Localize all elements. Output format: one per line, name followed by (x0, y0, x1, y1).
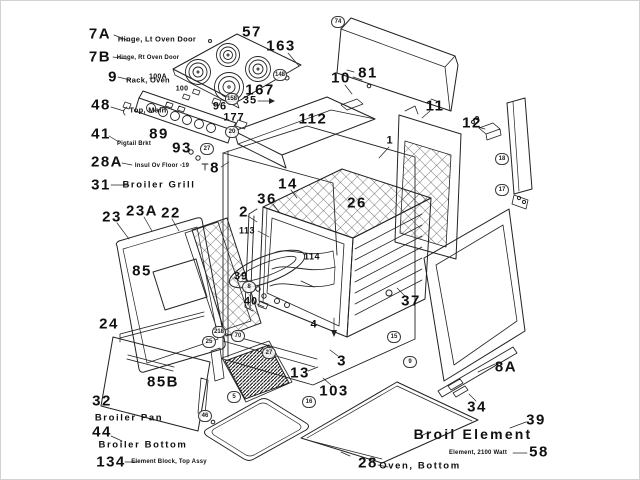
circled-callout-27: 27 (200, 143, 214, 155)
part-number-57: 57 (242, 25, 262, 40)
part-number-34: 34 (467, 400, 487, 415)
part-number-85: 85 (132, 264, 152, 279)
part-number-7B: 7B (89, 50, 111, 65)
part-number-24: 24 (99, 317, 119, 332)
part-label-44: Broiler Bottom (99, 440, 188, 450)
circled-callout-16: 16 (302, 396, 316, 408)
part-number-177: 177 (223, 113, 244, 124)
circled-callout-46: 46 (198, 410, 212, 422)
part-number-85B: 85B (147, 375, 179, 390)
part-number-23A: 23A (126, 204, 158, 219)
part-number-35: 35 (243, 96, 257, 107)
part-number-14: 14 (278, 177, 298, 192)
part-label-41: Pigtail Brkt (117, 141, 151, 147)
parts-diagram-canvas: 7AHinge, Lt Oven Door7BHinge, Rt Oven Do… (0, 0, 640, 480)
part-number-23: 23 (102, 210, 122, 225)
circled-callout-158: 158 (225, 93, 239, 105)
circled-callout-18: 18 (495, 153, 509, 165)
part-label-31: Broiler Grill (122, 180, 195, 190)
part-number-9: 9 (108, 70, 118, 85)
part-number-93: 93 (172, 141, 192, 156)
part-label-28A: Insul Ov Floor -19 (135, 163, 189, 169)
part-number-3: 3 (337, 354, 347, 369)
part-number-7A: 7A (89, 27, 111, 42)
part-number-32: 32 (92, 394, 112, 409)
circled-callout-25: 25 (202, 336, 216, 348)
part-number-44: 44 (92, 425, 112, 440)
part-number-28: 28 (358, 456, 378, 471)
part-number-12: 12 (462, 116, 482, 131)
part-number-26: 26 (347, 196, 367, 211)
part-number-31: 31 (91, 178, 111, 193)
part-number-8A: 8A (495, 360, 517, 375)
circled-callout-70: 70 (231, 330, 245, 342)
circled-callout-9: 9 (403, 356, 417, 368)
callout-layer: 7AHinge, Lt Oven Door7BHinge, Rt Oven Do… (1, 1, 640, 480)
part-number-112: 112 (299, 112, 328, 127)
part-number-81: 81 (358, 66, 378, 81)
circled-callout-148: 148 (273, 69, 287, 81)
part-number-58: 58 (529, 445, 549, 460)
circled-callout-15: 15 (387, 331, 401, 343)
part-label-32: Broiler Pan (95, 413, 163, 423)
part-number-41: 41 (91, 127, 111, 142)
part-number-100A: 100A (149, 74, 167, 81)
part-number-13: 13 (290, 366, 310, 381)
part-number-163: 163 (266, 39, 296, 54)
part-label-58: Element, 2100 Watt (449, 450, 507, 456)
part-label-7B: Hinge, Rt Oven Door (117, 55, 179, 61)
part-number-22: 22 (161, 206, 181, 221)
part-number-10: 10 (331, 71, 351, 86)
part-number-40: 40 (244, 297, 258, 308)
part-number-28A: 28A (91, 155, 123, 170)
part-number-1: 1 (386, 136, 393, 147)
part-number-37: 37 (401, 294, 421, 309)
part-number-103: 103 (319, 384, 349, 399)
circled-callout-8: 8 (242, 281, 256, 293)
part-number-100: 100 (176, 86, 189, 93)
part-number-48: 48 (91, 98, 111, 113)
part-label-28: Oven, Bottom (379, 461, 460, 471)
circled-callout-17: 17 (495, 184, 509, 196)
part-number-89: 89 (149, 127, 169, 142)
part-label-134: Element Block, Top Assy (131, 459, 207, 465)
part-number-114: 114 (304, 253, 320, 262)
part-number-113: 113 (239, 227, 255, 236)
circled-callout-5: 5 (227, 391, 241, 403)
part-number-11: 11 (426, 99, 445, 114)
part-label-48: Top, Main (129, 106, 166, 114)
circled-callout-27: 27 (262, 347, 276, 359)
part-number-4: 4 (310, 320, 317, 331)
circled-callout-218: 218 (212, 326, 226, 338)
part-number-36: 36 (257, 192, 277, 207)
part-label-39: Broil Element (414, 427, 533, 441)
circled-callout-74: 74 (331, 16, 345, 28)
circled-callout-20: 20 (225, 126, 239, 138)
part-label-7A: Hinge, Lt Oven Door (118, 35, 196, 43)
part-number-8: 8 (210, 161, 220, 176)
part-number-134: 134 (96, 455, 126, 470)
part-number-2: 2 (239, 205, 249, 220)
